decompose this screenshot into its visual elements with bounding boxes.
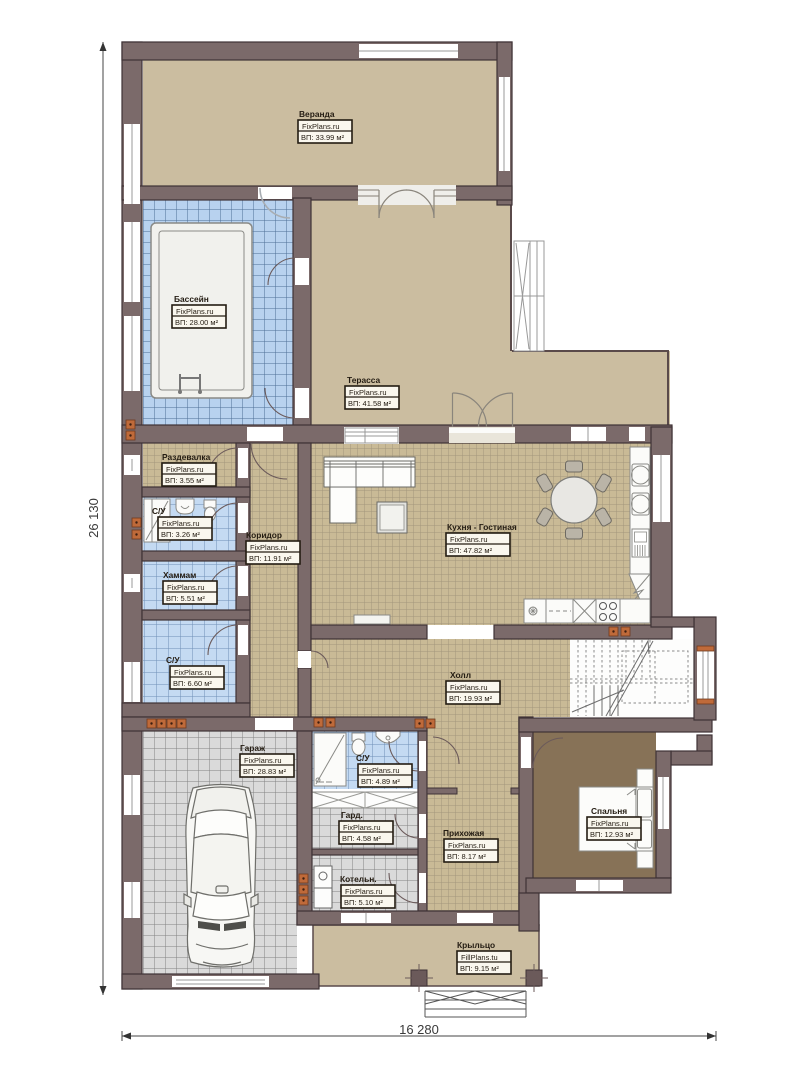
svg-text:ВП: 19.93 м²: ВП: 19.93 м² bbox=[449, 694, 493, 703]
svg-text:ВП: 28.83 м²: ВП: 28.83 м² bbox=[243, 767, 287, 776]
svg-text:С/У: С/У bbox=[152, 506, 166, 516]
svg-text:ВП: 8.17 м²: ВП: 8.17 м² bbox=[447, 852, 486, 861]
svg-text:Коридор: Коридор bbox=[246, 530, 282, 540]
svg-text:FixPlans.ru: FixPlans.ru bbox=[244, 756, 282, 765]
svg-text:FixPlans.ru: FixPlans.ru bbox=[343, 823, 381, 832]
svg-text:Гараж: Гараж bbox=[240, 743, 265, 753]
svg-text:ВП: 33.99 м²: ВП: 33.99 м² bbox=[301, 133, 345, 142]
svg-text:FixPlans.ru: FixPlans.ru bbox=[166, 465, 204, 474]
svg-text:FixPlans.ru: FixPlans.ru bbox=[450, 535, 488, 544]
svg-text:FixPlans.ru: FixPlans.ru bbox=[174, 668, 212, 677]
svg-text:FixPlans.ru: FixPlans.ru bbox=[450, 683, 488, 692]
svg-text:Холл: Холл bbox=[450, 670, 471, 680]
svg-text:FixPlans.ru: FixPlans.ru bbox=[176, 307, 214, 316]
svg-text:FixPlans.ru: FixPlans.ru bbox=[362, 766, 400, 775]
svg-text:FixPlans.ru: FixPlans.ru bbox=[448, 841, 486, 850]
svg-text:С/У: С/У bbox=[166, 655, 180, 665]
svg-text:ВП: 41.58 м²: ВП: 41.58 м² bbox=[348, 399, 392, 408]
svg-text:ВП: 4.89 м²: ВП: 4.89 м² bbox=[361, 777, 400, 786]
svg-text:С/У: С/У bbox=[356, 753, 370, 763]
svg-text:Прихожая: Прихожая bbox=[443, 828, 484, 838]
svg-text:Хаммам: Хаммам bbox=[163, 570, 196, 580]
svg-text:FixPlans.ru: FixPlans.ru bbox=[250, 543, 288, 552]
svg-text:Терасса: Терасса bbox=[347, 375, 381, 385]
svg-text:ВП: 5.10 м²: ВП: 5.10 м² bbox=[344, 898, 383, 907]
svg-text:Бассейн: Бассейн bbox=[174, 294, 209, 304]
svg-text:16 280: 16 280 bbox=[399, 1022, 439, 1037]
svg-text:ВП: 3.26 м²: ВП: 3.26 м² bbox=[161, 530, 200, 539]
svg-text:26 130: 26 130 bbox=[86, 498, 101, 538]
svg-text:FixPlans.ru: FixPlans.ru bbox=[591, 819, 629, 828]
svg-text:ВП: 12.93 м²: ВП: 12.93 м² bbox=[590, 830, 634, 839]
svg-text:Кухня - Гостиная: Кухня - Гостиная bbox=[447, 522, 517, 532]
svg-text:ВП: 47.82 м²: ВП: 47.82 м² bbox=[449, 546, 493, 555]
svg-text:ВП: 9.15 м²: ВП: 9.15 м² bbox=[460, 964, 499, 973]
svg-text:ВП: 28.00 м²: ВП: 28.00 м² bbox=[175, 318, 219, 327]
svg-text:ВП: 6.60 м²: ВП: 6.60 м² bbox=[173, 679, 212, 688]
svg-text:FixPlans.ru: FixPlans.ru bbox=[349, 388, 387, 397]
svg-text:Крыльцо: Крыльцо bbox=[457, 940, 495, 950]
svg-text:Спальня: Спальня bbox=[591, 806, 627, 816]
svg-text:FixPlans.ru: FixPlans.ru bbox=[162, 519, 200, 528]
svg-text:Котельн.: Котельн. bbox=[340, 874, 377, 884]
svg-text:FillPlans.tu: FillPlans.tu bbox=[461, 953, 498, 962]
svg-text:Гард.: Гард. bbox=[341, 810, 363, 820]
svg-text:ВП: 11.91 м²: ВП: 11.91 м² bbox=[249, 554, 292, 563]
svg-text:FixPlans.ru: FixPlans.ru bbox=[345, 887, 383, 896]
svg-text:Раздевалка: Раздевалка bbox=[162, 452, 211, 462]
svg-text:FixPlans.ru: FixPlans.ru bbox=[302, 122, 340, 131]
svg-text:FixPlans.ru: FixPlans.ru bbox=[167, 583, 205, 592]
svg-text:ВП: 5.51 м²: ВП: 5.51 м² bbox=[166, 594, 205, 603]
svg-text:Веранда: Веранда bbox=[299, 109, 335, 119]
svg-text:ВП: 3.55 м²: ВП: 3.55 м² bbox=[165, 476, 204, 485]
svg-text:ВП: 4.58 м²: ВП: 4.58 м² bbox=[342, 834, 381, 843]
